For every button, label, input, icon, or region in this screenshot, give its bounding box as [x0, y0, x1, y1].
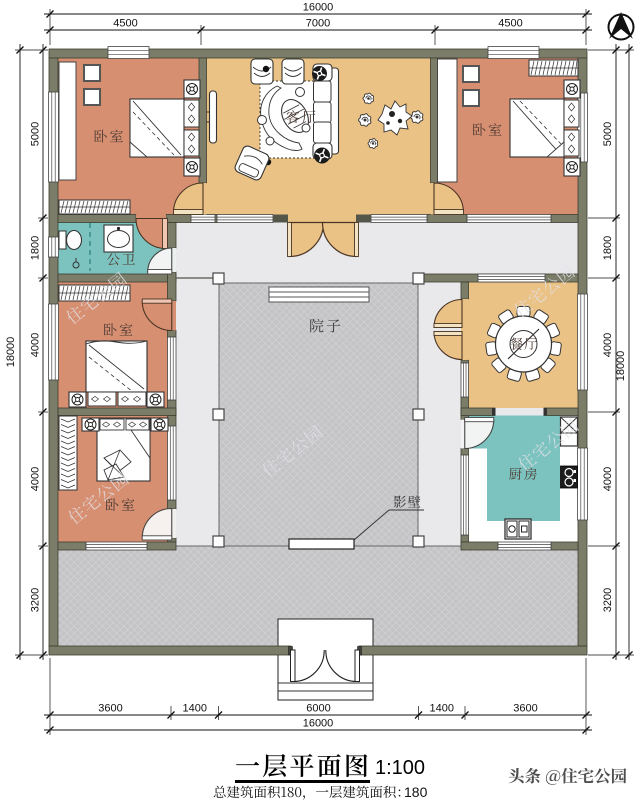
svg-text:3200: 3200 — [602, 588, 614, 612]
svg-text:4000: 4000 — [30, 467, 42, 491]
svg-text:18000: 18000 — [5, 337, 17, 368]
svg-text:16000: 16000 — [303, 2, 334, 14]
svg-text:3200: 3200 — [30, 588, 42, 612]
svg-text:16000: 16000 — [303, 718, 334, 730]
svg-text:5000: 5000 — [602, 122, 614, 146]
svg-text:1800: 1800 — [602, 236, 614, 260]
svg-text:180: 180 — [404, 784, 428, 800]
svg-text:4500: 4500 — [498, 18, 522, 30]
svg-text:5000: 5000 — [30, 122, 42, 146]
svg-text:3600: 3600 — [513, 703, 537, 715]
svg-text:7000: 7000 — [306, 18, 330, 30]
svg-text:1800: 1800 — [30, 236, 42, 260]
svg-text:3600: 3600 — [98, 703, 122, 715]
svg-text:4500: 4500 — [113, 18, 137, 30]
svg-text:18000: 18000 — [615, 351, 627, 382]
svg-text:1400: 1400 — [430, 703, 454, 715]
svg-text:1:100: 1:100 — [375, 757, 425, 779]
svg-text:4000: 4000 — [602, 467, 614, 491]
svg-text:6000: 6000 — [306, 703, 330, 715]
svg-text:4000: 4000 — [30, 333, 42, 357]
svg-text:4000: 4000 — [602, 333, 614, 357]
svg-text:1400: 1400 — [183, 703, 207, 715]
